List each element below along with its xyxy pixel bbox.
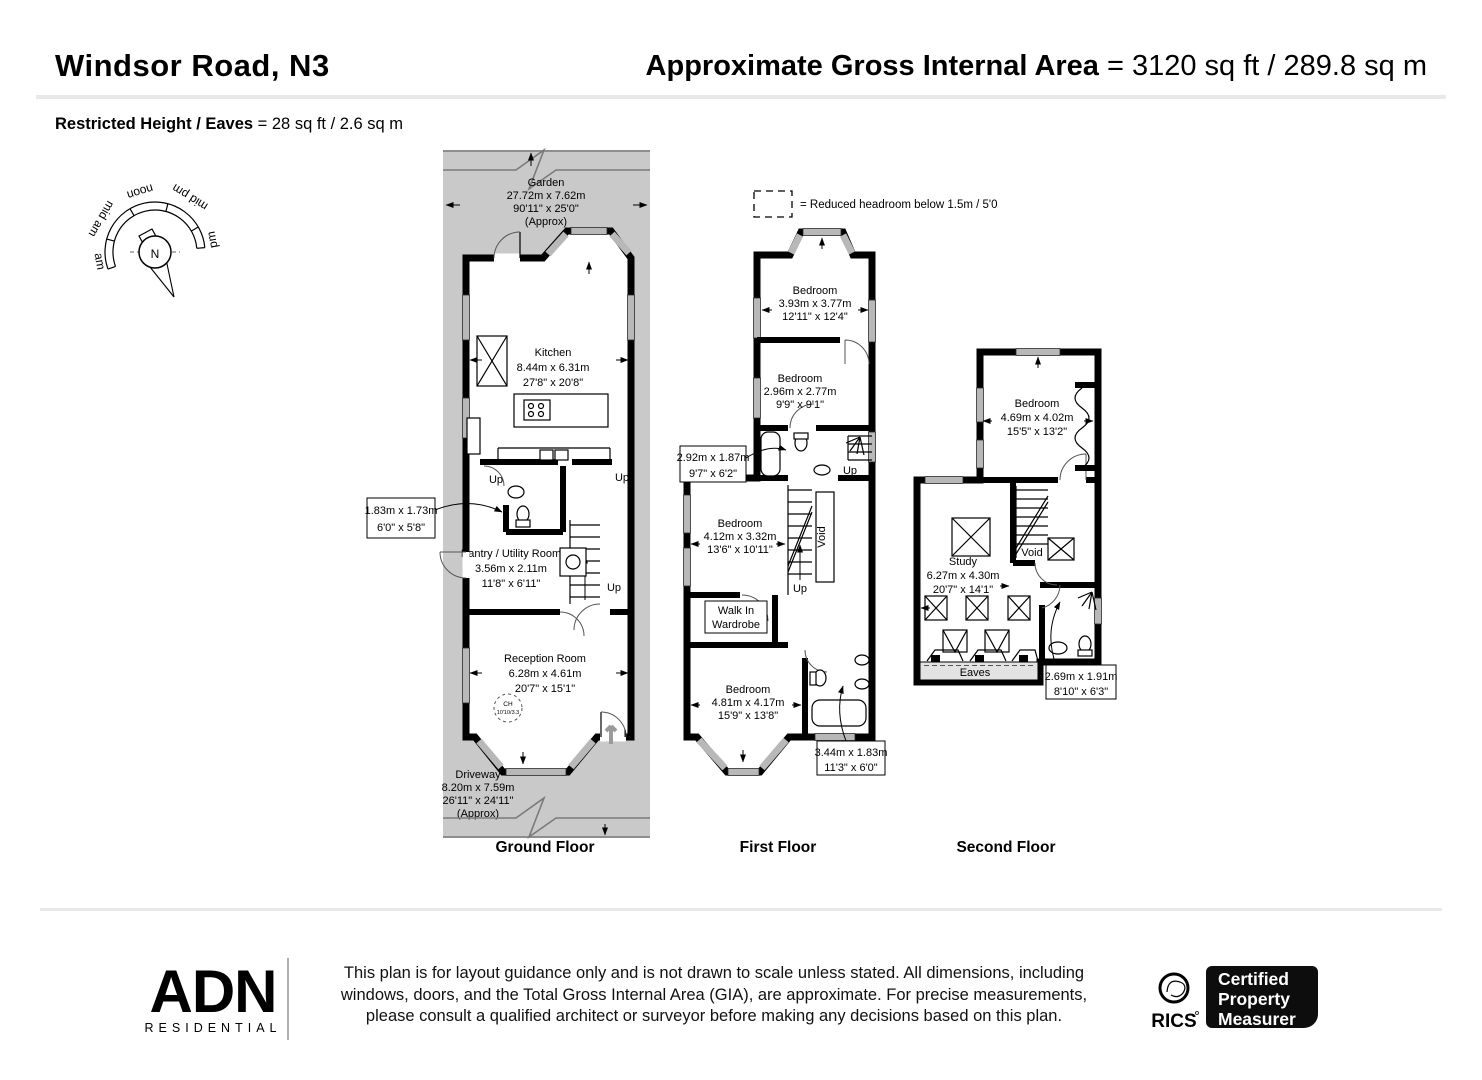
compass-pm-label: pm [204,230,221,249]
second-bedroom-name: Bedroom [1015,398,1060,410]
wc-toilet-icon [516,506,530,527]
ch-line2: 10'10/3.3 [497,710,519,716]
wc-metric: 1.83m x 1.73m [365,505,438,517]
bath-icon [761,432,780,476]
shower-imperial: 8'10" x 6'3" [1054,686,1108,698]
bathroom1-imperial: 9'7" x 6'2" [689,468,737,480]
badge-line3: Measurer [1218,1009,1318,1029]
second-bedroom-imperial: 15'5" x 13'2" [1007,426,1067,438]
reception-name: Reception Room [504,653,586,665]
second-floor-label: Second Floor [956,839,1055,856]
toilet-icon [1078,636,1092,656]
reception-metric: 6.28m x 4.61m [509,668,582,680]
first-floor-label: First Floor [740,839,817,856]
reduced-headroom-swatch [754,191,792,217]
wardrobe-line1: Walk In [718,605,754,617]
driveway-imperial: 26'11" x 24'11" [443,795,514,807]
bathroom1-metric: 2.92m x 1.87m [677,452,750,464]
rics-logo: RICS [1151,974,1198,1032]
first-void-label: Void [816,526,828,547]
bedroom4-name: Bedroom [726,684,771,696]
wc-basin-icon [508,486,524,498]
ground-up-stairs-label: Up [607,582,621,594]
eaves-label: Eaves [960,667,991,679]
garden-name: Garden [528,177,565,189]
kitchen-imperial: 27'8" x 20'8" [523,377,583,389]
compass-noon-label: noon [125,181,155,202]
disclaimer-line1: This plan is for layout guidance only an… [340,963,1088,985]
pantry-imperial: 11'8" x 6'11" [482,578,541,590]
basin-icon [855,655,869,665]
certified-property-measurer-badge: Certified Property Measurer [1206,966,1318,1028]
washing-machine-icon [560,548,586,576]
study-name: Study [949,556,978,568]
bedroom2-name: Bedroom [778,373,823,385]
first-up-mid-label: Up [793,583,807,595]
kitchen-island [514,394,608,427]
study-metric: 6.27m x 4.30m [927,570,1000,582]
reduced-headroom-legend: = Reduced headroom below 1.5m / 5'0 [754,191,998,217]
driveway-name: Driveway [455,769,501,781]
floorplan-drawing: N am mid am noon mid pm pm = Reduced hea… [0,0,1482,1080]
reception-label: Reception Room 6.28m x 4.61m 20'7" x 15'… [504,653,586,695]
rics-lion-icon [1160,974,1188,1002]
study-imperial: 20'7" x 14'1" [933,584,993,596]
compass-icon: N am mid am noon mid pm pm [86,181,221,297]
bathroom2-metric: 3.44m x 1.83m [815,747,888,759]
badge-line2: Property [1218,989,1318,1009]
bedroom3-name: Bedroom [718,518,763,530]
bedroom3-metric: 4.12m x 3.32m [704,531,777,543]
bedroom4-imperial: 15'9" x 13'8" [718,710,778,722]
compass-mid-pm-label: mid pm [169,181,210,214]
garden-metric: 27.72m x 7.62m [507,190,586,202]
bedroom1-metric: 3.93m x 3.77m [779,298,852,310]
first-floor-plan: Bedroom 3.93m x 3.77m 12'11" x 12'4" Bed… [677,229,888,857]
second-void-label: Void [1021,547,1042,559]
second-floor-plan: Bedroom 4.69m x 4.02m 15'5" x 13'2" Void… [917,349,1117,857]
ch-line1: CH [503,701,513,708]
kitchen-metric: 8.44m x 6.31m [517,362,590,374]
bedroom2-metric: 2.96m x 2.77m [764,386,837,398]
void-area-first: Void [816,492,834,582]
disclaimer-text: This plan is for layout guidance only an… [340,963,1088,1028]
ground-up-right-label: Up [615,472,629,484]
footer-divider [40,908,1442,911]
ceiling-height-marker: CH 10'10/3.3 [494,694,522,722]
disclaimer-line3: please consult a qualified architect or … [340,1006,1088,1028]
wardrobe-line2: Wardrobe [712,619,760,631]
void-skylight-box [1048,538,1074,560]
fridge-icon [467,418,480,454]
badge-line1: Certified [1218,969,1318,989]
bedroom1-imperial: 12'11" x 12'4" [782,311,848,323]
first-up-top-label: Up [843,465,857,477]
bedroom1-name: Bedroom [793,285,838,297]
pantry-name: Pantry / Utility Room [461,548,561,560]
shower-metric: 2.69m x 1.91m [1045,671,1118,683]
disclaimer-line2: windows, doors, and the Total Gross Inte… [340,985,1088,1007]
kitchen-tall-unit [477,336,507,386]
reduced-headroom-label: = Reduced headroom below 1.5m / 5'0 [800,199,998,211]
in-label: IN [624,728,635,740]
brand-name: ADN [150,958,277,1025]
compass-mid-am-label: mid am [86,198,118,239]
adn-logo: ADN RESIDENTIAL [145,958,288,1040]
bedroom3-imperial: 13'6" x 10'11" [707,544,773,556]
wc-imperial: 6'0" x 5'8" [377,522,425,534]
bathroom2-imperial: 11'3" x 6'0" [824,762,877,774]
toilet-icon [794,433,808,451]
garden-imperial: 90'11" x 25'0" [513,203,579,215]
bedroom4-metric: 4.81m x 4.17m [712,697,785,709]
driveway-metric: 8.20m x 7.59m [442,782,515,794]
ground-floor-label: Ground Floor [495,839,594,856]
bath-icon [812,700,866,726]
compass-am-label: am [92,252,109,271]
wardrobe-label: Walk In Wardrobe [705,601,767,633]
toilet-icon [810,670,826,686]
basin-icon [814,465,830,475]
ground-floor-plan: Garden 27.72m x 7.62m 90'11" x 25'0" (Ap… [365,150,650,856]
kitchen-name: Kitchen [535,347,572,359]
bedroom2-imperial: 9'9" x 9'1" [776,399,824,411]
second-bedroom-metric: 4.69m x 4.02m [1001,412,1074,424]
compass-north-label: N [151,247,160,261]
pantry-metric: 3.56m x 2.11m [475,563,547,575]
floorplan-page: Windsor Road, N3 Approximate Gross Inter… [0,0,1482,1080]
basin-icon [855,679,869,689]
brand-sub: RESIDENTIAL [145,1021,282,1035]
rics-name: RICS [1151,1011,1196,1032]
reception-imperial: 20'7" x 15'1" [515,683,575,695]
garden-approx: (Approx) [525,216,567,228]
